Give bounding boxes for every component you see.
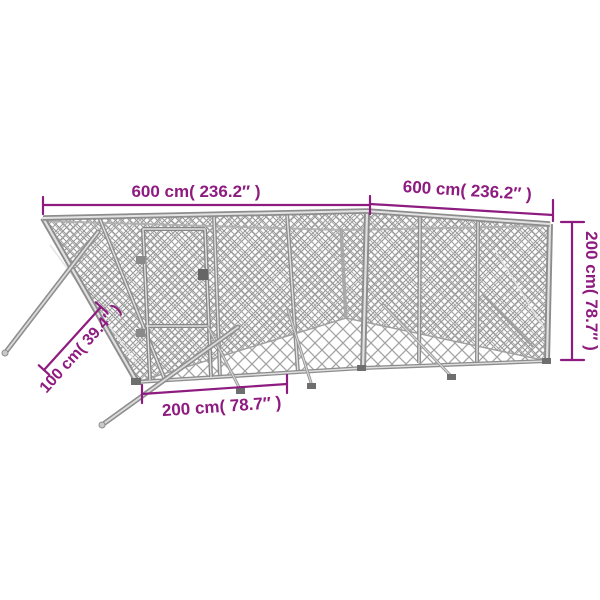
door-hinge-top — [136, 256, 145, 264]
dim-label-bottom: 200 cm( 78.7″ ) — [161, 393, 282, 420]
door-latch — [198, 269, 208, 280]
dim-label-top-left: 600 cm( 236.2″ ) — [131, 182, 260, 201]
dim-label-right: 200 cm( 78.7″ ) — [582, 231, 600, 351]
product-dimension-diagram: 600 cm( 236.2″ ) 600 cm( 236.2″ ) 200 cm… — [0, 0, 600, 600]
dim-label-top-right: 600 cm( 236.2″ ) — [402, 177, 532, 204]
dim-label-diagonal: 100 cm( 39.4″ ) — [37, 301, 125, 396]
door-hinge-bottom — [136, 329, 145, 337]
kennel-diagram-svg: 600 cm( 236.2″ ) 600 cm( 236.2″ ) 200 cm… — [0, 0, 600, 600]
dim-line-right — [561, 222, 584, 360]
